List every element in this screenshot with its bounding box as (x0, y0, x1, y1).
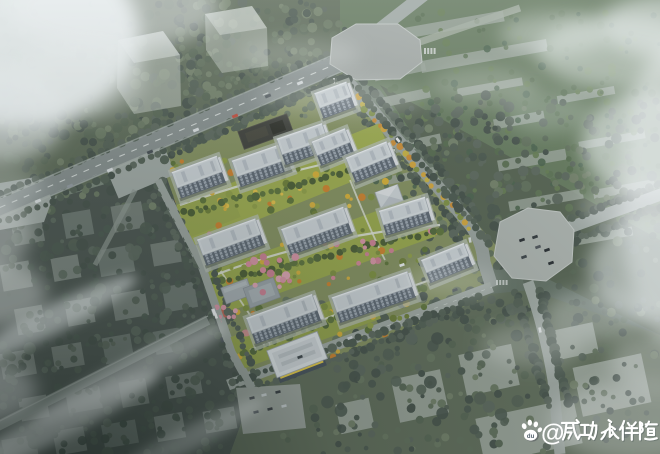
svg-text:du: du (527, 434, 535, 440)
svg-text:@: @ (541, 420, 564, 447)
